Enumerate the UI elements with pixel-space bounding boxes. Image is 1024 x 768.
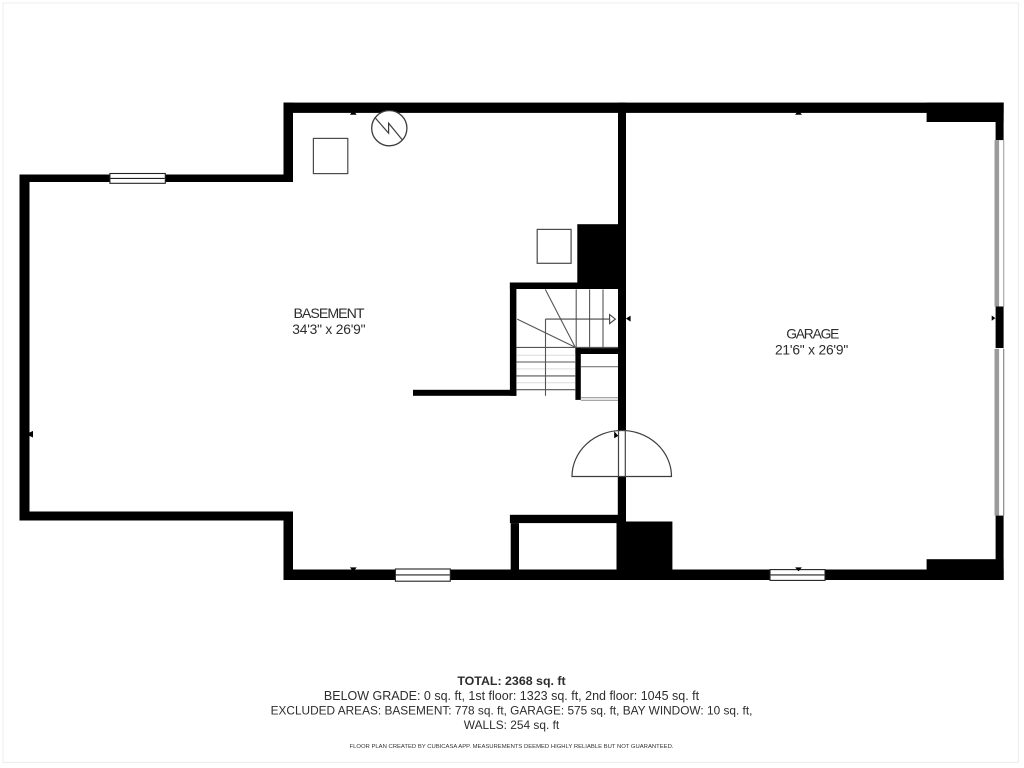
svg-text:BELOW GRADE: 0 sq. ft, 1st flo: BELOW GRADE: 0 sq. ft, 1st floor: 1323 s… — [324, 689, 700, 703]
svg-text:EXCLUDED AREAS: BASEMENT: 778: EXCLUDED AREAS: BASEMENT: 778 sq. ft, GA… — [271, 703, 753, 717]
svg-text:FLOOR PLAN CREATED BY CUBICASA: FLOOR PLAN CREATED BY CUBICASA APP. MEAS… — [350, 744, 674, 750]
svg-text:GARAGE: GARAGE — [786, 327, 839, 342]
svg-text:21'6" x 26'9": 21'6" x 26'9" — [775, 343, 848, 358]
svg-text:34'3" x 26'9": 34'3" x 26'9" — [292, 322, 365, 337]
svg-text:BASEMENT: BASEMENT — [293, 306, 364, 322]
svg-text:TOTAL: 2368 sq. ft: TOTAL: 2368 sq. ft — [457, 674, 565, 688]
svg-text:WALLS: 254 sq. ft: WALLS: 254 sq. ft — [464, 718, 560, 732]
